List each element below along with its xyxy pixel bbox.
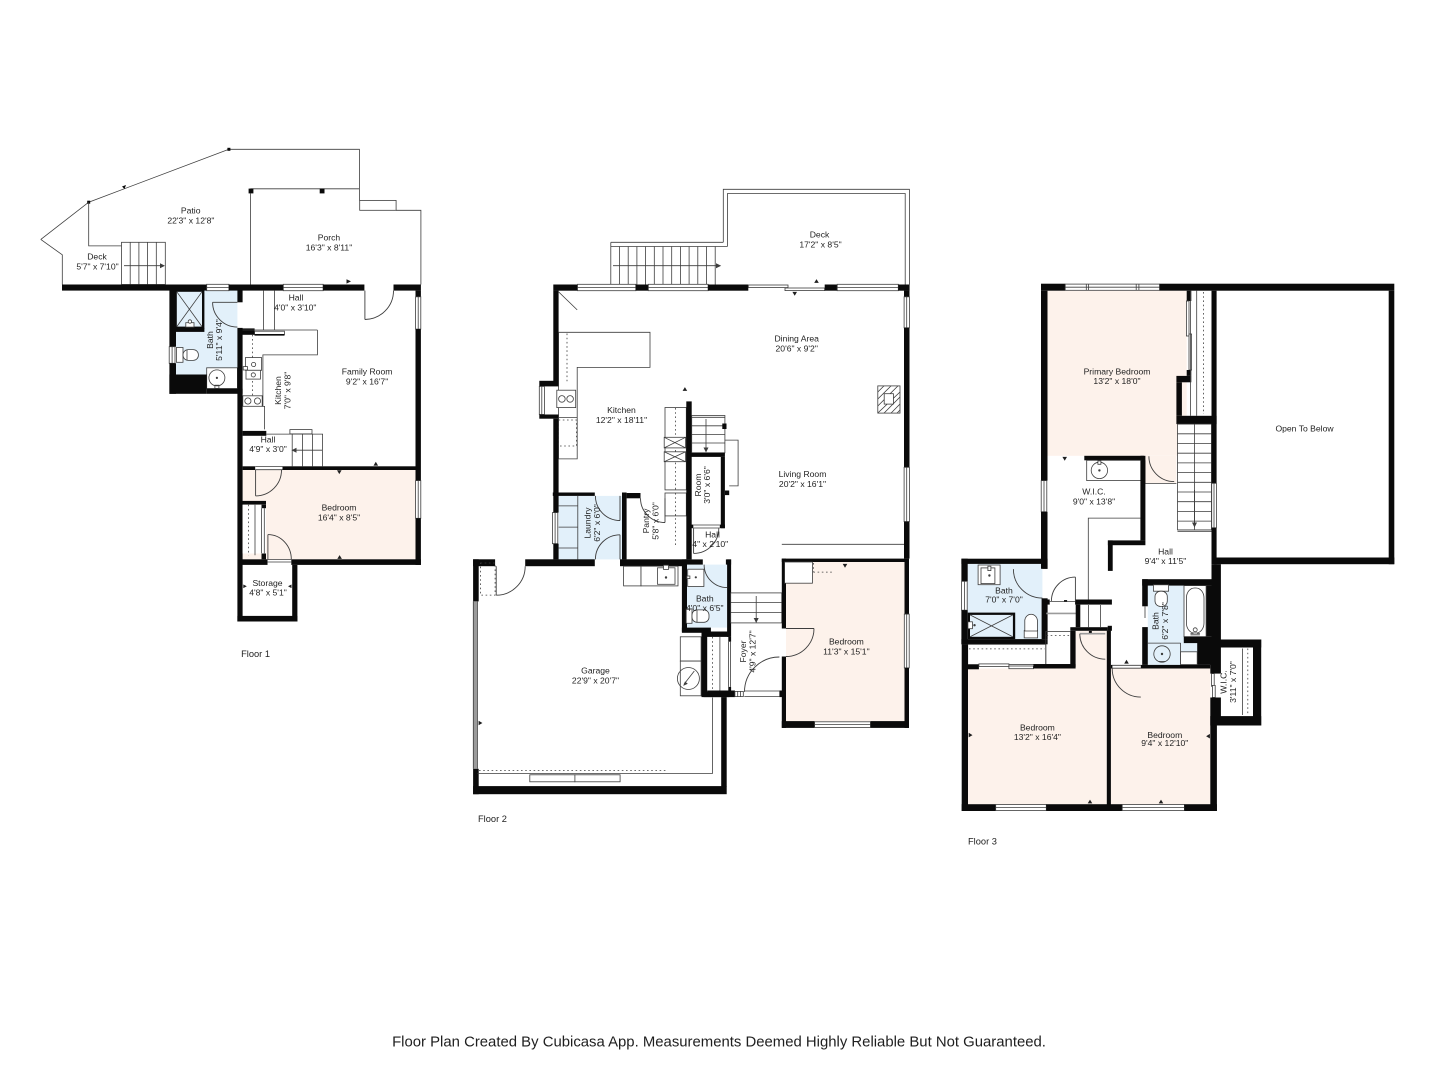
svg-text:9'0" x 13'8": 9'0" x 13'8" xyxy=(1073,496,1115,506)
svg-text:Deck: Deck xyxy=(810,230,830,240)
svg-text:7'0" x 9'8": 7'0" x 9'8" xyxy=(282,372,292,410)
svg-text:20'6" x 9'2": 20'6" x 9'2" xyxy=(776,343,818,353)
svg-text:Floor 2: Floor 2 xyxy=(478,814,507,824)
svg-text:22'3" x 12'8": 22'3" x 12'8" xyxy=(167,216,214,226)
svg-text:Hall: Hall xyxy=(261,434,276,444)
svg-text:16'4" x 8'5": 16'4" x 8'5" xyxy=(318,512,360,522)
svg-text:Patio: Patio xyxy=(181,206,201,216)
svg-text:3'11" x 7'0": 3'11" x 7'0" xyxy=(1228,661,1238,703)
svg-text:11'3" x 15'1": 11'3" x 15'1" xyxy=(823,646,870,656)
svg-text:Garage: Garage xyxy=(581,666,610,676)
svg-text:Floor 3: Floor 3 xyxy=(968,837,997,847)
svg-text:Porch: Porch xyxy=(318,233,341,243)
svg-text:Living Room: Living Room xyxy=(779,469,827,479)
svg-text:7'0" x 7'0": 7'0" x 7'0" xyxy=(985,594,1023,604)
svg-text:6'2" x 6'0": 6'2" x 6'0" xyxy=(592,504,602,542)
svg-text:17'2" x 8'5": 17'2" x 8'5" xyxy=(799,239,841,249)
svg-text:Foyer: Foyer xyxy=(738,640,748,662)
svg-text:3'0" x 6'6": 3'0" x 6'6" xyxy=(702,466,712,504)
svg-text:5'8" x 6'0": 5'8" x 6'0" xyxy=(650,502,660,540)
svg-text:20'2" x 16'1": 20'2" x 16'1" xyxy=(779,479,826,489)
svg-text:4'0" x 3'10": 4'0" x 3'10" xyxy=(274,302,316,312)
svg-text:Primary Bedroom: Primary Bedroom xyxy=(1084,366,1151,376)
svg-text:4'9" x 3'0": 4'9" x 3'0" xyxy=(249,444,287,454)
svg-text:Bedroom: Bedroom xyxy=(1020,722,1055,732)
svg-text:Floor 1: Floor 1 xyxy=(241,649,270,659)
svg-text:Floor Plan Created By Cubicasa: Floor Plan Created By Cubicasa App. Meas… xyxy=(392,1035,1046,1051)
svg-text:4'8" x 5'1": 4'8" x 5'1" xyxy=(249,588,287,598)
svg-text:13'2" x 18'0": 13'2" x 18'0" xyxy=(1093,376,1140,386)
svg-text:W.I.C.: W.I.C. xyxy=(1218,670,1228,693)
svg-text:Kitchen: Kitchen xyxy=(607,405,636,415)
svg-text:Family Room: Family Room xyxy=(342,367,393,377)
svg-text:6'2" x 7'8": 6'2" x 7'8" xyxy=(1160,602,1170,640)
svg-text:Bedroom: Bedroom xyxy=(322,503,357,513)
svg-text:Storage: Storage xyxy=(252,578,282,588)
svg-text:Bedroom: Bedroom xyxy=(829,637,864,647)
svg-text:12'2" x 18'11": 12'2" x 18'11" xyxy=(596,415,647,425)
svg-text:16'3" x 8'11": 16'3" x 8'11" xyxy=(306,242,353,252)
svg-text:Deck: Deck xyxy=(87,252,107,262)
svg-text:22'9" x 20'7": 22'9" x 20'7" xyxy=(572,675,619,685)
svg-text:9'4" x 11'5": 9'4" x 11'5" xyxy=(1145,556,1187,566)
svg-text:9'4" x 12'10": 9'4" x 12'10" xyxy=(1141,738,1188,748)
svg-text:Dining Area: Dining Area xyxy=(774,334,819,344)
svg-text:4'0" x 6'5": 4'0" x 6'5" xyxy=(686,603,724,613)
svg-text:W.I.C.: W.I.C. xyxy=(1082,487,1105,497)
svg-text:5'7" x 7'10": 5'7" x 7'10" xyxy=(76,261,118,271)
svg-text:13'2" x 16'4": 13'2" x 16'4" xyxy=(1014,732,1061,742)
svg-text:5'11" x 9'4": 5'11" x 9'4" xyxy=(214,319,224,361)
svg-text:9'2" x 16'7": 9'2" x 16'7" xyxy=(346,376,388,386)
svg-text:Hall: Hall xyxy=(1158,546,1173,556)
svg-text:4" x 2'10": 4" x 2'10" xyxy=(692,539,728,549)
svg-text:Open To Below: Open To Below xyxy=(1275,423,1334,433)
svg-text:Hall: Hall xyxy=(705,529,720,539)
svg-text:Bath: Bath xyxy=(696,593,714,603)
svg-text:Hall: Hall xyxy=(289,293,304,303)
